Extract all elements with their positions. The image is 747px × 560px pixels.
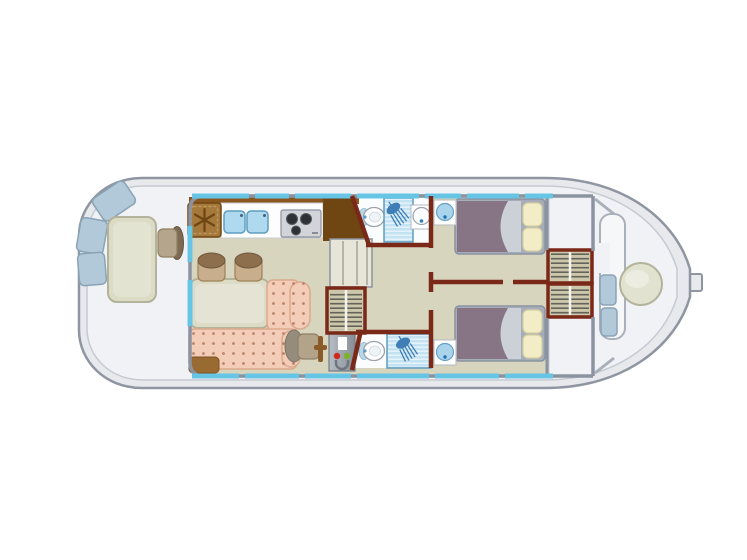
bed-bottom-pillow-1	[523, 310, 542, 333]
console-panel	[338, 337, 347, 350]
washbasin-top-tap	[420, 219, 424, 223]
companionway-stairs	[330, 239, 372, 287]
stool-1-back	[198, 253, 225, 268]
aft-cabin-bottom-alcove	[549, 317, 592, 375]
saloon-wardrobe	[327, 288, 365, 333]
stove-burner-3	[292, 226, 301, 235]
stove-controls	[312, 232, 318, 234]
bow-seat-cushion-2	[76, 217, 108, 255]
stove-burner-1	[287, 214, 298, 225]
aft-cabin-top-alcove	[549, 197, 592, 250]
bed-top-pillow-1	[523, 203, 542, 226]
boat-floor-plan-image	[0, 0, 747, 560]
stove-burner-2	[301, 214, 312, 225]
sink-drain-left	[240, 214, 243, 217]
bow-deck-table-top	[113, 222, 151, 297]
aft-wardrobe-top	[548, 250, 592, 283]
bed-top-pillow-2	[523, 228, 542, 251]
sink-drain-right	[263, 214, 266, 217]
bed-bottom-pillow-2	[523, 335, 542, 358]
bow-seat-cushion-3	[77, 252, 107, 286]
aft-wardrobe-bottom	[548, 284, 592, 317]
console-red-indicator	[334, 353, 340, 359]
stool-2-back	[235, 253, 262, 268]
stern-cushion-2	[601, 308, 617, 336]
cabin-bottom-basin-tap	[443, 355, 446, 358]
toilet-bottom	[359, 342, 385, 361]
stern-table-highlight	[625, 270, 649, 288]
cabin-top-basin-tap	[443, 215, 446, 218]
stern-bench-opening	[596, 243, 610, 273]
floor-plan-canvas	[0, 0, 747, 560]
console-green-indicator	[344, 353, 350, 359]
dinette-table-top	[195, 284, 264, 323]
bow-chair-seat	[158, 229, 177, 257]
stern-cushion-1	[600, 275, 616, 305]
steering-lever-handle	[314, 345, 327, 350]
galley	[188, 197, 369, 241]
sofa-dots-side	[269, 282, 307, 328]
